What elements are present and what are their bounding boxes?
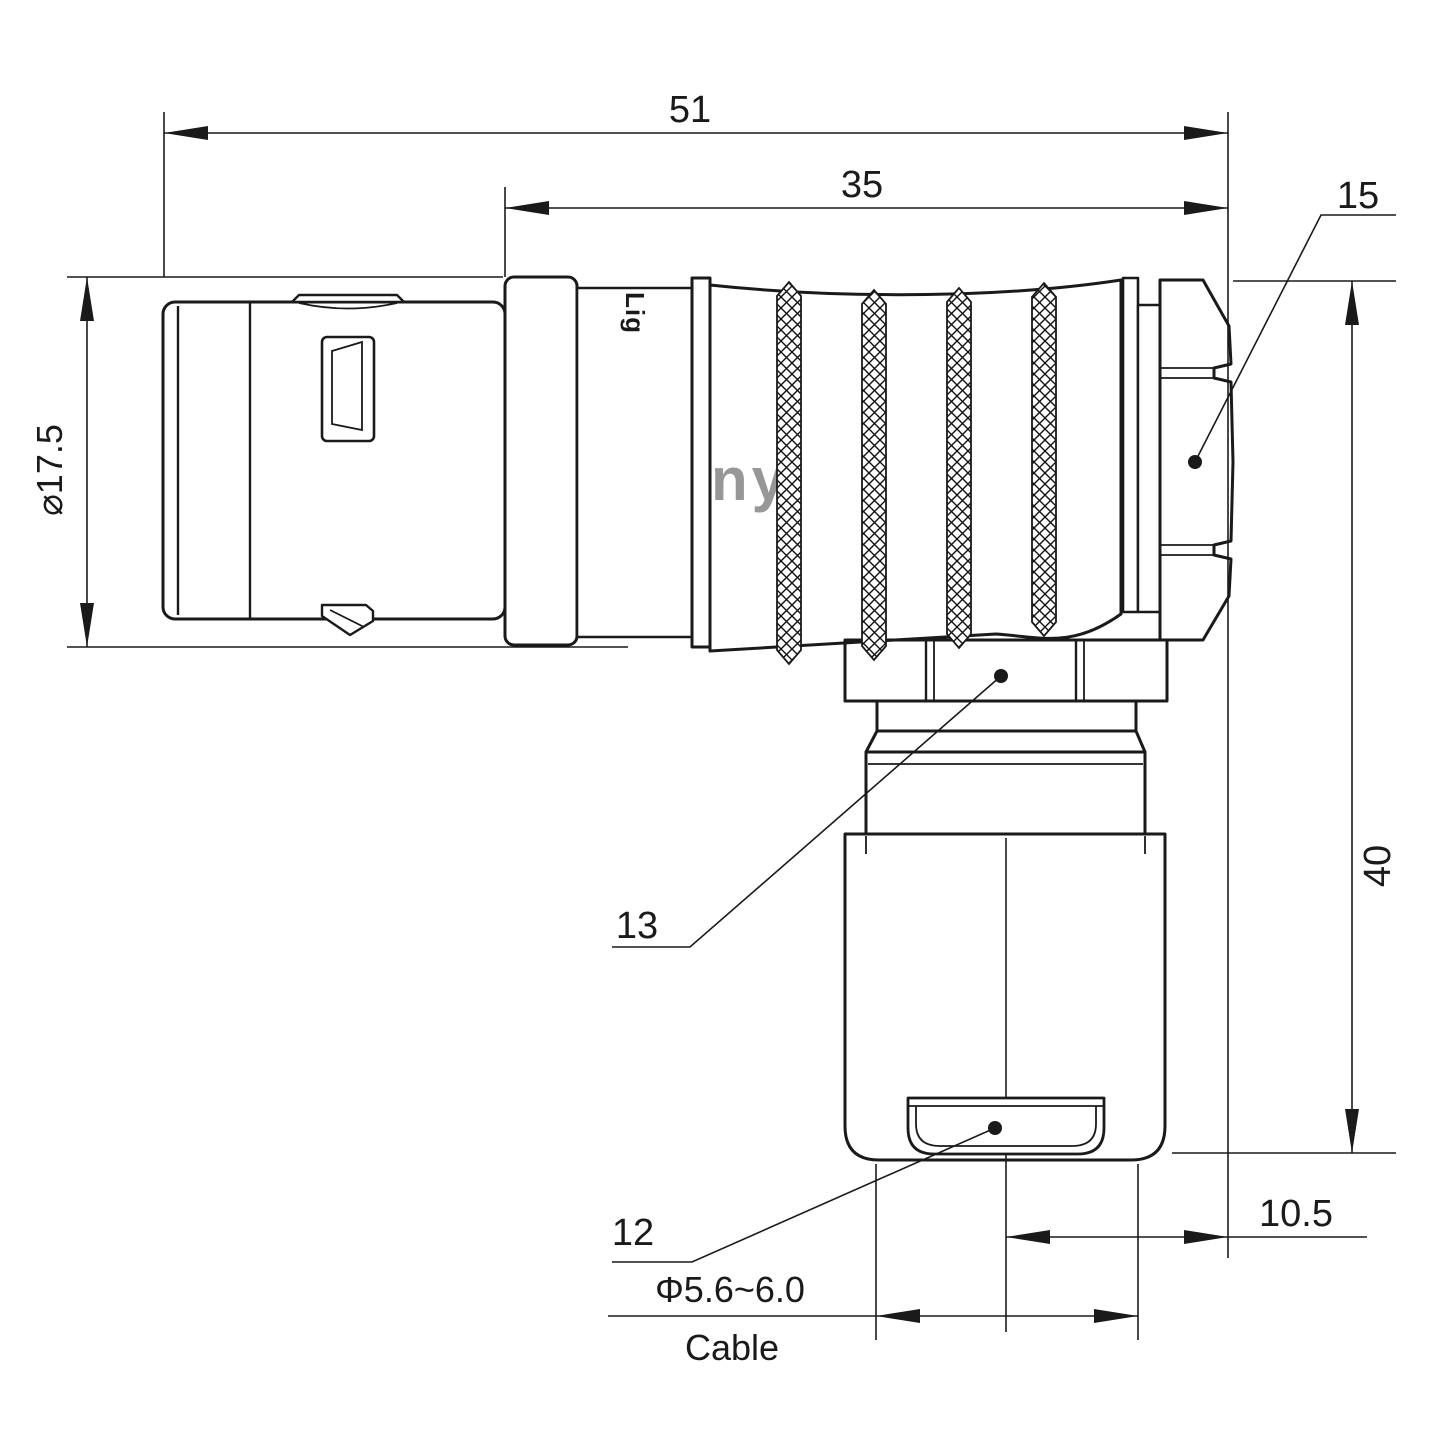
rear-step — [1138, 305, 1160, 612]
leader-dot — [994, 669, 1008, 683]
front-shell-ring — [505, 277, 577, 645]
clamp-ring-flange — [866, 731, 1145, 752]
body-print-text: Lig — [620, 292, 650, 334]
dim-40-label: 40 — [1357, 845, 1399, 887]
dimension-side-offset: 10.5 — [1006, 1193, 1367, 1244]
clamp-nut — [845, 640, 1167, 701]
knurl-bands — [777, 282, 1056, 664]
dimension-front-length: 35 — [505, 164, 1228, 277]
ref-12-label: 12 — [612, 1212, 654, 1254]
key-cap — [292, 295, 404, 302]
grip-ring — [692, 278, 710, 647]
knurl-band — [777, 282, 801, 664]
rear-ring — [1123, 278, 1138, 612]
ref-15-label: 15 — [1337, 175, 1379, 217]
mid-body — [577, 288, 692, 637]
drawing-canvas: Lightany — [0, 0, 1440, 1440]
knurl-band — [862, 290, 886, 660]
dim-cable-dia-label: Φ5.6~6.0 — [655, 1269, 805, 1310]
leader-dot — [1188, 455, 1202, 469]
ref-13-label: 13 — [616, 905, 658, 947]
latch-window — [322, 337, 374, 441]
dim-17-5-label: ⌀17.5 — [29, 424, 70, 516]
connector-drawing: Lightany — [0, 0, 1440, 1440]
dim-10-5-label: 10.5 — [1259, 1193, 1333, 1235]
dimension-cable-diameter: Φ5.6~6.0 Cable — [608, 1164, 1138, 1368]
knurl-band — [1032, 283, 1056, 636]
elbow-down-leg — [845, 640, 1167, 1332]
leader-dot — [988, 1121, 1002, 1135]
dim-35-label: 35 — [841, 164, 883, 206]
knurl-band — [947, 288, 971, 648]
latch-tab — [322, 605, 373, 635]
plug-body: Lig — [163, 277, 1233, 664]
dim-51-label: 51 — [669, 89, 711, 131]
clamp-ring — [877, 701, 1136, 731]
cable-caption: Cable — [685, 1327, 779, 1368]
